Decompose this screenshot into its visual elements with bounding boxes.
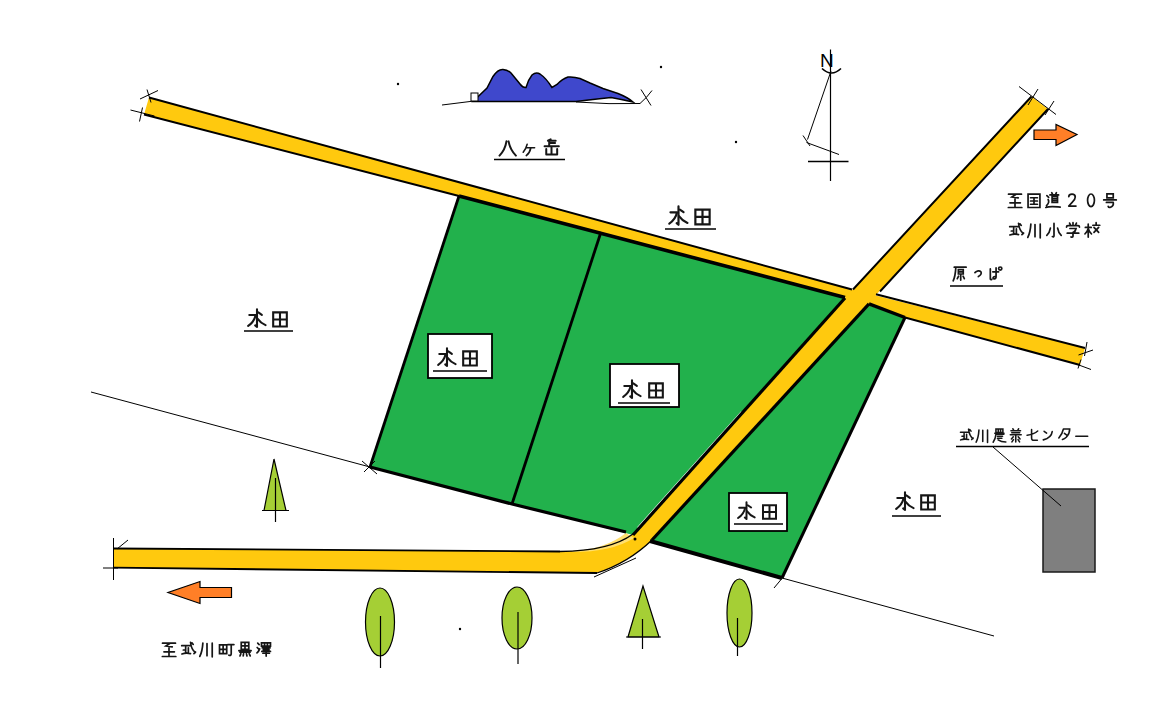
svg-text:N: N bbox=[820, 50, 834, 71]
